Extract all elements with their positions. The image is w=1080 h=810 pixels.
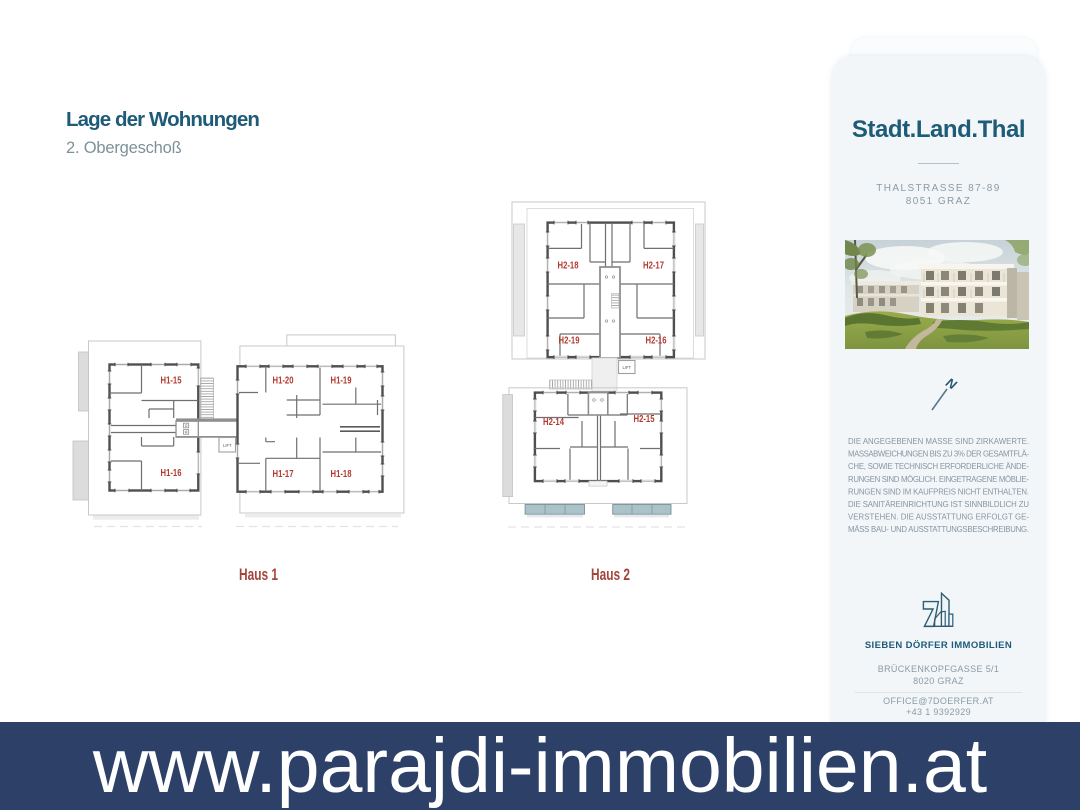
svg-text:LIFT: LIFT xyxy=(223,443,232,448)
svg-text:LIFT: LIFT xyxy=(622,365,631,370)
svg-text:RUNGEN SIND MÖGLICH. EINGETRAG: RUNGEN SIND MÖGLICH. EINGETRAGENE MÖBLIE… xyxy=(848,475,1029,484)
svg-text:H2-17: H2-17 xyxy=(643,261,664,272)
svg-text:H1-19: H1-19 xyxy=(331,376,352,387)
svg-text:H1-17: H1-17 xyxy=(273,469,294,480)
svg-text:RUNGEN SIND IM KAUFPREIS NICHT: RUNGEN SIND IM KAUFPREIS NICHT ENTHALTEN… xyxy=(848,487,1029,496)
svg-text:H2-19: H2-19 xyxy=(559,336,580,347)
svg-text:H1-18: H1-18 xyxy=(331,469,352,480)
svg-text:H1-15: H1-15 xyxy=(161,376,182,387)
svg-text:MÄSS BAU- UND AUSSTATTUNGSBESC: MÄSS BAU- UND AUSSTATTUNGSBESCHREIBUNG. xyxy=(848,525,1029,534)
svg-text:CHE, SOWIE TECHNISCH ERFORDERL: CHE, SOWIE TECHNISCH ERFORDERLICHE ÄNDE- xyxy=(848,462,1029,471)
svg-text:H2-14: H2-14 xyxy=(543,417,564,428)
svg-text:VERSTEHEN. DIE AUSSTATTUNG ERF: VERSTEHEN. DIE AUSSTATTUNG ERFOLGT GE- xyxy=(848,513,1029,522)
svg-text:H2-15: H2-15 xyxy=(634,414,655,425)
svg-text:H1-16: H1-16 xyxy=(161,468,182,479)
svg-text:DIE SANITÄREINRICHTUNG IST SIN: DIE SANITÄREINRICHTUNG IST SINNBILDLICH … xyxy=(848,500,1029,509)
svg-text:DIE ANGEGEBENEN MASSE SIND ZIR: DIE ANGEGEBENEN MASSE SIND ZIRKAWERTE. xyxy=(848,437,1029,446)
svg-text:H1-20: H1-20 xyxy=(273,376,294,387)
svg-text:MASSABWEICHUNGEN BIS ZU 3% DER: MASSABWEICHUNGEN BIS ZU 3% DER GESAMTFLÄ… xyxy=(848,450,1029,459)
svg-text:H2-18: H2-18 xyxy=(558,261,579,272)
svg-text:H2-16: H2-16 xyxy=(646,336,667,347)
